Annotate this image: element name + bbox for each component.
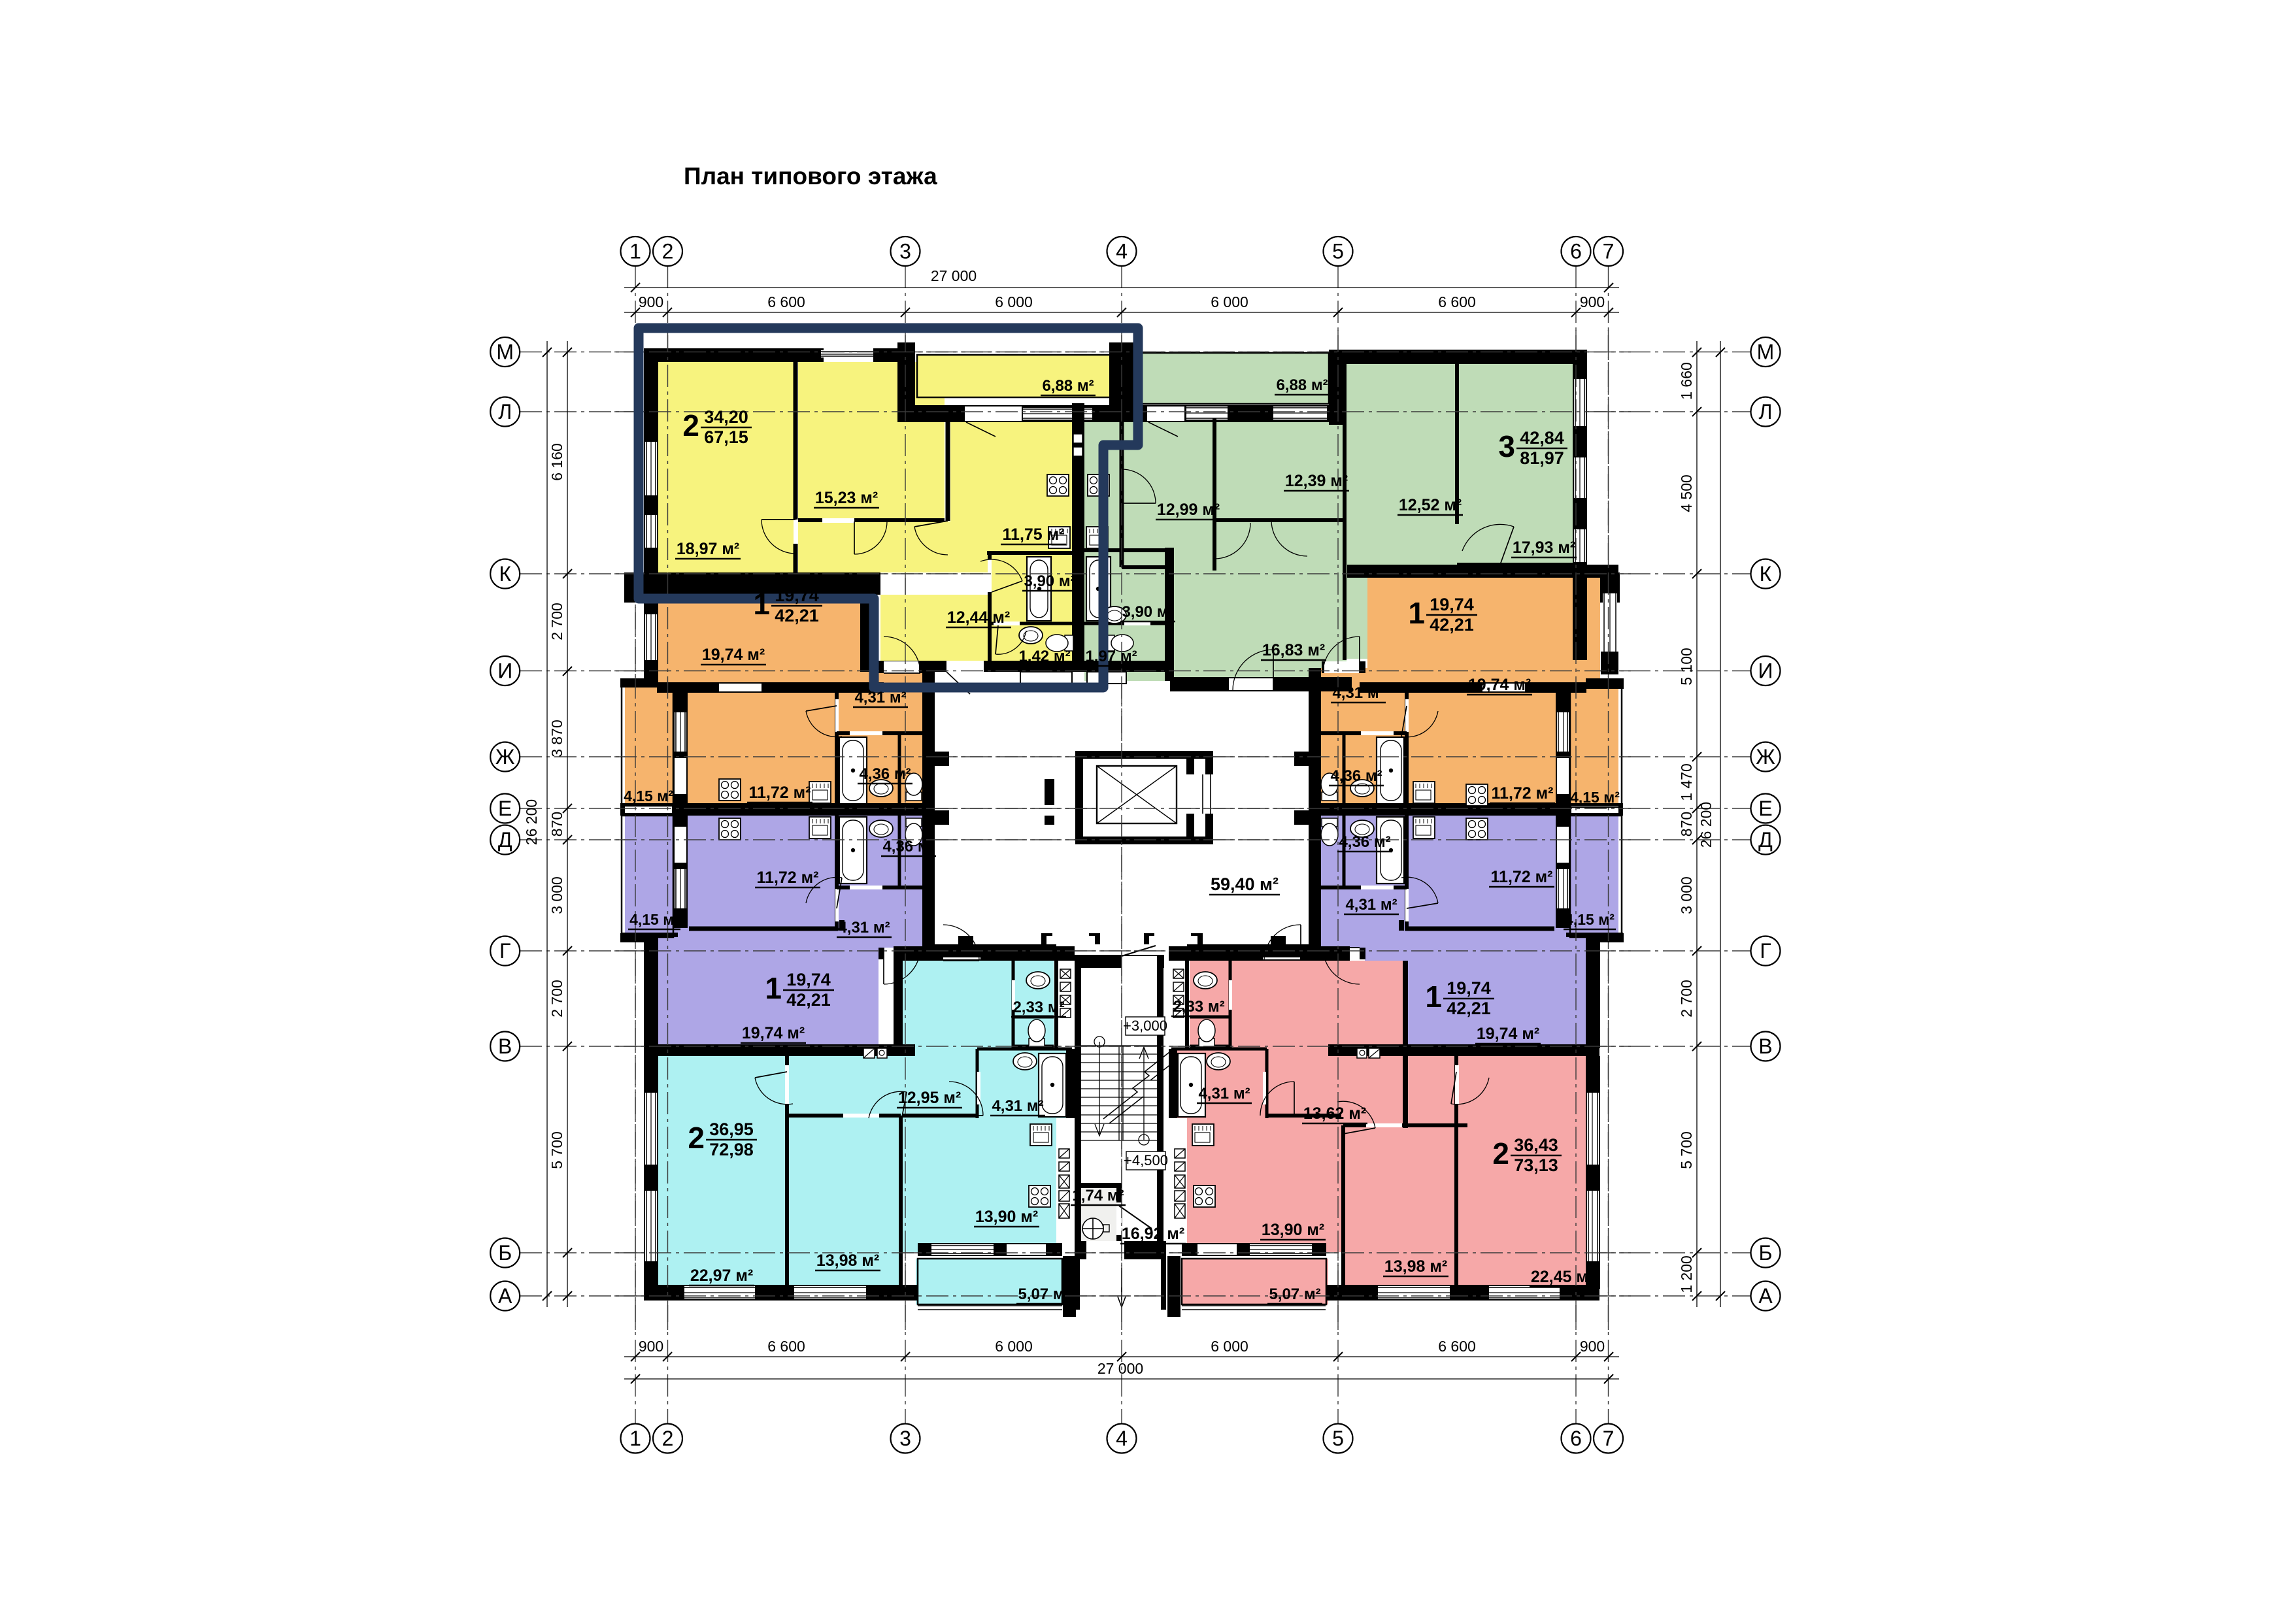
svg-text:В: В (1758, 1035, 1772, 1058)
svg-text:Ж: Ж (1756, 745, 1775, 769)
svg-text:6,88 м²: 6,88 м² (1042, 377, 1094, 395)
svg-text:4,31 м²: 4,31 м² (1332, 684, 1384, 702)
svg-text:6 600: 6 600 (767, 293, 805, 310)
svg-text:+4,500: +4,500 (1124, 1152, 1168, 1168)
svg-text:3: 3 (1498, 429, 1515, 463)
svg-text:1 660: 1 660 (1678, 362, 1695, 400)
svg-text:5 700: 5 700 (1678, 1131, 1695, 1169)
svg-text:Г: Г (499, 939, 510, 963)
svg-text:19,74 м²: 19,74 м² (1477, 1025, 1539, 1043)
svg-text:4,36 м²: 4,36 м² (882, 838, 934, 855)
svg-text:6 160: 6 160 (548, 443, 565, 481)
svg-text:2 700: 2 700 (548, 603, 565, 640)
svg-text:4: 4 (1116, 1427, 1128, 1450)
svg-text:59,40 м²: 59,40 м² (1211, 874, 1279, 894)
svg-text:19,74: 19,74 (1430, 595, 1474, 614)
svg-text:2 700: 2 700 (1678, 980, 1695, 1018)
svg-text:2 700: 2 700 (548, 980, 565, 1018)
svg-text:5 700: 5 700 (548, 1131, 565, 1169)
svg-text:19,74 м²: 19,74 м² (702, 646, 765, 664)
svg-text:73,13: 73,13 (1514, 1155, 1558, 1175)
svg-text:18,97 м²: 18,97 м² (677, 540, 739, 558)
svg-text:67,15: 67,15 (704, 427, 748, 447)
svg-text:2,33 м²: 2,33 м² (1013, 999, 1064, 1016)
svg-text:2: 2 (1492, 1136, 1509, 1170)
svg-text:15,23 м²: 15,23 м² (815, 489, 878, 507)
svg-text:6 000: 6 000 (995, 293, 1033, 310)
svg-text:Д: Д (498, 828, 512, 852)
svg-text:4,36 м²: 4,36 м² (1339, 833, 1390, 851)
svg-text:1 470: 1 470 (1678, 763, 1695, 801)
svg-text:12,52 м²: 12,52 м² (1399, 496, 1462, 514)
svg-text:900: 900 (639, 293, 663, 310)
svg-text:22,45 м²: 22,45 м² (1531, 1268, 1594, 1286)
svg-text:5,07 м²: 5,07 м² (1018, 1285, 1069, 1303)
svg-text:13,90 м²: 13,90 м² (1262, 1221, 1324, 1239)
svg-text:Д: Д (1758, 828, 1773, 852)
svg-text:6 000: 6 000 (995, 1338, 1033, 1355)
svg-text:42,21: 42,21 (1447, 999, 1491, 1018)
svg-text:2,33 м²: 2,33 м² (1173, 998, 1224, 1016)
svg-text:Б: Б (1759, 1241, 1773, 1265)
svg-text:6: 6 (1570, 1427, 1582, 1450)
svg-text:12,44 м²: 12,44 м² (947, 608, 1010, 627)
svg-text:3 870: 3 870 (548, 720, 565, 757)
svg-text:1: 1 (765, 971, 782, 1005)
svg-text:17,93 м²: 17,93 м² (1513, 539, 1575, 557)
svg-text:11,72 м²: 11,72 м² (1492, 784, 1554, 803)
svg-text:81,97: 81,97 (1520, 448, 1564, 468)
svg-text:4,31 м²: 4,31 м² (1198, 1085, 1250, 1102)
svg-text:4,36 м²: 4,36 м² (1330, 767, 1382, 785)
svg-text:19,74 м²: 19,74 м² (1468, 676, 1531, 694)
svg-text:Ж: Ж (495, 745, 515, 769)
svg-text:3: 3 (899, 1427, 911, 1450)
svg-text:План типового этажа: План типового этажа (684, 163, 937, 190)
svg-text:Е: Е (1758, 797, 1772, 820)
svg-text:870: 870 (1678, 812, 1695, 837)
svg-text:6: 6 (1570, 240, 1582, 263)
svg-text:А: А (1758, 1284, 1773, 1308)
svg-text:Л: Л (498, 400, 512, 423)
svg-text:16,92 м²: 16,92 м² (1122, 1225, 1184, 1243)
svg-text:12,39 м²: 12,39 м² (1285, 472, 1348, 490)
svg-text:4,31 м²: 4,31 м² (838, 919, 890, 936)
svg-text:27 000: 27 000 (931, 267, 977, 284)
svg-text:3: 3 (899, 240, 911, 263)
svg-text:Г: Г (1760, 939, 1771, 963)
svg-text:5,07 м²: 5,07 м² (1269, 1285, 1320, 1303)
svg-text:13,62 м²: 13,62 м² (1303, 1104, 1366, 1123)
svg-text:1: 1 (629, 240, 641, 263)
svg-text:11,75 м²: 11,75 м² (1003, 525, 1065, 544)
svg-text:2: 2 (682, 408, 699, 442)
svg-text:5: 5 (1332, 240, 1344, 263)
svg-text:1 200: 1 200 (1678, 1255, 1695, 1293)
svg-text:4,31 м²: 4,31 м² (854, 689, 906, 706)
svg-text:4,15 м²: 4,15 м² (1565, 911, 1615, 928)
svg-text:2: 2 (662, 240, 674, 263)
svg-text:42,21: 42,21 (786, 990, 831, 1010)
svg-text:4: 4 (1116, 240, 1128, 263)
svg-text:11,72 м²: 11,72 м² (1491, 868, 1553, 886)
svg-text:1,42 м²: 1,42 м² (1018, 648, 1070, 665)
svg-text:34,20: 34,20 (704, 407, 748, 427)
svg-text:6,88 м²: 6,88 м² (1276, 376, 1328, 394)
svg-text:36,43: 36,43 (1514, 1135, 1558, 1155)
svg-text:6 600: 6 600 (767, 1338, 805, 1355)
svg-text:4,15 м²: 4,15 м² (629, 911, 679, 928)
svg-text:4,31 м²: 4,31 м² (992, 1097, 1043, 1115)
svg-text:4 500: 4 500 (1678, 474, 1695, 512)
svg-text:7: 7 (1603, 1427, 1615, 1450)
svg-text:Е: Е (498, 797, 512, 820)
svg-text:26 200: 26 200 (523, 799, 540, 845)
svg-text:13,90 м²: 13,90 м² (975, 1208, 1038, 1226)
svg-text:4,36 м²: 4,36 м² (859, 765, 911, 783)
svg-text:3 000: 3 000 (1678, 876, 1695, 914)
svg-text:4,15 м²: 4,15 м² (1570, 789, 1620, 806)
svg-text:И: И (497, 659, 512, 683)
svg-text:3 000: 3 000 (548, 876, 565, 914)
svg-text:4,31 м²: 4,31 м² (1345, 896, 1397, 914)
svg-text:2: 2 (688, 1121, 705, 1155)
svg-text:1: 1 (1425, 980, 1442, 1014)
svg-text:1: 1 (753, 587, 770, 621)
svg-text:42,84: 42,84 (1520, 428, 1564, 448)
svg-text:13,98 м²: 13,98 м² (816, 1251, 879, 1270)
svg-text:А: А (498, 1284, 512, 1308)
svg-text:В: В (498, 1035, 512, 1058)
svg-text:42,21: 42,21 (1430, 615, 1474, 635)
svg-text:12,99 м²: 12,99 м² (1157, 501, 1220, 519)
svg-text:900: 900 (1580, 293, 1605, 310)
svg-text:19,74: 19,74 (1447, 978, 1491, 998)
svg-text:900: 900 (1580, 1338, 1605, 1355)
svg-text:3,90 м²: 3,90 м² (1122, 603, 1173, 621)
svg-text:870: 870 (548, 812, 565, 837)
svg-text:19,74: 19,74 (775, 586, 819, 605)
svg-text:72,98: 72,98 (709, 1140, 754, 1159)
svg-text:6 600: 6 600 (1438, 293, 1476, 310)
svg-text:16,83 м²: 16,83 м² (1262, 641, 1325, 659)
svg-text:22,97 м²: 22,97 м² (690, 1267, 753, 1285)
svg-text:27 000: 27 000 (1097, 1360, 1143, 1377)
svg-text:К: К (499, 562, 511, 586)
svg-text:19,74: 19,74 (786, 970, 831, 989)
svg-text:6 600: 6 600 (1438, 1338, 1476, 1355)
svg-text:6 000: 6 000 (1211, 1338, 1248, 1355)
svg-text:И: И (1758, 659, 1773, 683)
svg-text:Б: Б (498, 1241, 512, 1265)
svg-text:5 100: 5 100 (1678, 648, 1695, 686)
svg-text:26 200: 26 200 (1698, 802, 1715, 848)
svg-text:К: К (1760, 562, 1772, 586)
svg-text:3,90 м²: 3,90 м² (1024, 572, 1075, 590)
svg-text:19,74 м²: 19,74 м² (742, 1024, 805, 1042)
svg-text:5: 5 (1332, 1427, 1344, 1450)
svg-text:1: 1 (1408, 596, 1425, 630)
svg-text:4,15 м²: 4,15 м² (624, 787, 673, 804)
svg-text:36,95: 36,95 (709, 1119, 754, 1139)
svg-text:11,72 м²: 11,72 м² (749, 784, 811, 802)
svg-text:900: 900 (639, 1338, 663, 1355)
svg-text:11,72 м²: 11,72 м² (757, 869, 819, 887)
svg-text:7: 7 (1603, 240, 1615, 263)
svg-text:1: 1 (629, 1427, 641, 1450)
svg-text:1,97 м²: 1,97 м² (1085, 648, 1137, 665)
svg-text:+3,000: +3,000 (1123, 1018, 1167, 1034)
svg-text:2: 2 (662, 1427, 674, 1450)
svg-text:1,74 м²: 1,74 м² (1072, 1187, 1124, 1204)
svg-text:13,98 м²: 13,98 м² (1384, 1257, 1447, 1276)
svg-text:6 000: 6 000 (1211, 293, 1248, 310)
svg-text:М: М (1757, 340, 1775, 364)
svg-text:12,95 м²: 12,95 м² (898, 1089, 961, 1107)
svg-text:Л: Л (1759, 400, 1773, 423)
svg-text:42,21: 42,21 (775, 606, 819, 625)
svg-text:М: М (496, 340, 514, 364)
